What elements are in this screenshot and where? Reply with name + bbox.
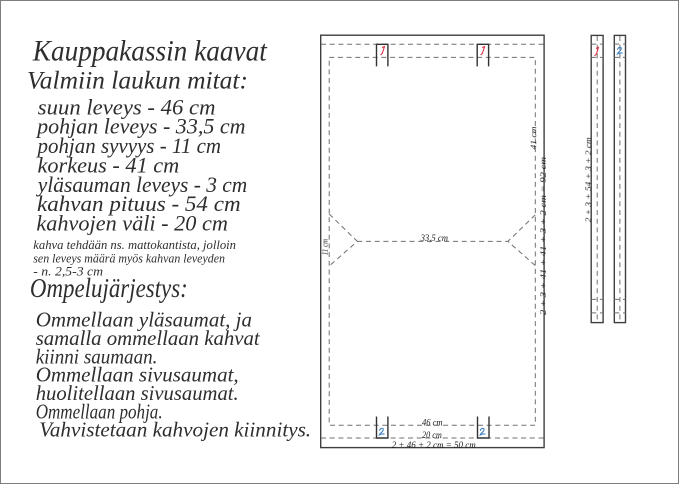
svg-text:Ompelujärjestys:: Ompelujärjestys: xyxy=(30,273,188,303)
svg-text:46 cm: 46 cm xyxy=(422,417,443,427)
svg-text:Vahvistetaan kahvojen kiinnity: Vahvistetaan kahvojen kiinnitys. xyxy=(39,418,311,442)
svg-text:kahvojen väli - 20 cm: kahvojen väli - 20 cm xyxy=(36,210,228,235)
svg-text:Valmiin laukun mitat:: Valmiin laukun mitat: xyxy=(27,68,248,95)
svg-text:Kauppakassin kaavat: Kauppakassin kaavat xyxy=(32,34,268,67)
svg-text:2 + 3 + 54 + 3 + 2 cm: 2 + 3 + 54 + 3 + 2 cm xyxy=(584,137,593,222)
svg-text:kahva tehdään ns. mattokantist: kahva tehdään ns. mattokantista, jolloin xyxy=(33,238,236,252)
svg-text:20 cm: 20 cm xyxy=(422,430,442,440)
svg-text:11 cm: 11 cm xyxy=(321,239,330,255)
svg-text:2 + 3 + 41 + 41 + 3 + 2 cm = 9: 2 + 3 + 41 + 41 + 3 + 2 cm = 92 cm xyxy=(539,157,548,315)
svg-text:41 cm: 41 cm xyxy=(529,126,538,149)
svg-text:2 + 46 + 2 cm = 50 cm: 2 + 46 + 2 cm = 50 cm xyxy=(392,440,476,450)
svg-text:33,5 cm: 33,5 cm xyxy=(420,233,449,243)
svg-text:sen leveys määrä myös kahvan l: sen leveys määrä myös kahvan leveyden xyxy=(33,251,225,265)
